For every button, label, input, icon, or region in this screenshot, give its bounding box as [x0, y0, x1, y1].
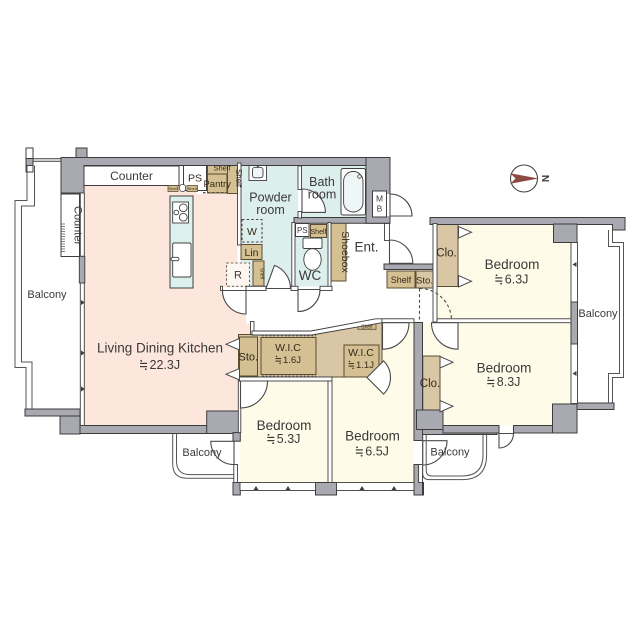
svg-text:Bedroom: Bedroom: [477, 361, 532, 376]
svg-text:1.6J: 1.6J: [283, 355, 301, 366]
svg-text:Bedroom: Bedroom: [345, 429, 400, 444]
svg-text:Clo.: Clo.: [420, 378, 440, 390]
svg-text:Shelf: Shelf: [391, 275, 412, 285]
svg-text:R: R: [234, 270, 242, 282]
svg-text:Sto.: Sto.: [416, 275, 433, 286]
svg-text:Shelf: Shelf: [258, 268, 264, 280]
svg-text:N: N: [539, 175, 550, 182]
svg-text:22.3J: 22.3J: [150, 358, 181, 372]
svg-text:M: M: [376, 194, 383, 204]
svg-text:Counter: Counter: [72, 206, 84, 245]
svg-text:B: B: [377, 204, 383, 214]
svg-text:W.I.C: W.I.C: [275, 342, 301, 354]
svg-text:room: room: [256, 203, 284, 217]
svg-text:Sto.: Sto.: [239, 352, 259, 364]
svg-text:Pantry: Pantry: [203, 179, 231, 190]
svg-text:Clo.: Clo.: [436, 248, 456, 260]
svg-text:Balcony: Balcony: [578, 308, 618, 320]
svg-text:1.1J: 1.1J: [356, 360, 374, 371]
svg-text:Balcony: Balcony: [430, 446, 470, 458]
svg-text:Ent.: Ent.: [354, 239, 378, 254]
svg-text:Shelf: Shelf: [234, 169, 243, 188]
svg-text:W.I.C: W.I.C: [348, 347, 374, 359]
svg-text:Living Dining Kitchen: Living Dining Kitchen: [97, 340, 223, 355]
svg-text:Shelf: Shelf: [311, 229, 327, 236]
svg-text:Counter: Counter: [110, 169, 153, 183]
svg-text:Shoebox: Shoebox: [339, 231, 351, 273]
svg-text:Balcony: Balcony: [27, 289, 67, 301]
svg-text:PS: PS: [297, 226, 308, 235]
svg-text:Shelf: Shelf: [213, 164, 231, 173]
svg-text:Shelf: Shelf: [168, 186, 178, 191]
svg-text:Balcony: Balcony: [182, 447, 222, 459]
svg-text:8.3J: 8.3J: [497, 375, 521, 389]
svg-text:room: room: [308, 187, 336, 201]
svg-text:Bedroom: Bedroom: [485, 257, 540, 272]
svg-text:Shelf: Shelf: [188, 186, 198, 191]
svg-text:5.3J: 5.3J: [277, 432, 301, 446]
svg-text:Lin: Lin: [244, 247, 258, 259]
svg-text:W: W: [247, 226, 257, 238]
svg-text:6.3J: 6.3J: [505, 273, 529, 287]
svg-text:WC: WC: [299, 268, 322, 283]
svg-text:6.5J: 6.5J: [365, 445, 389, 459]
svg-text:Shelf: Shelf: [361, 324, 373, 330]
svg-text:Bedroom: Bedroom: [257, 418, 312, 433]
svg-text:PS: PS: [188, 173, 202, 185]
